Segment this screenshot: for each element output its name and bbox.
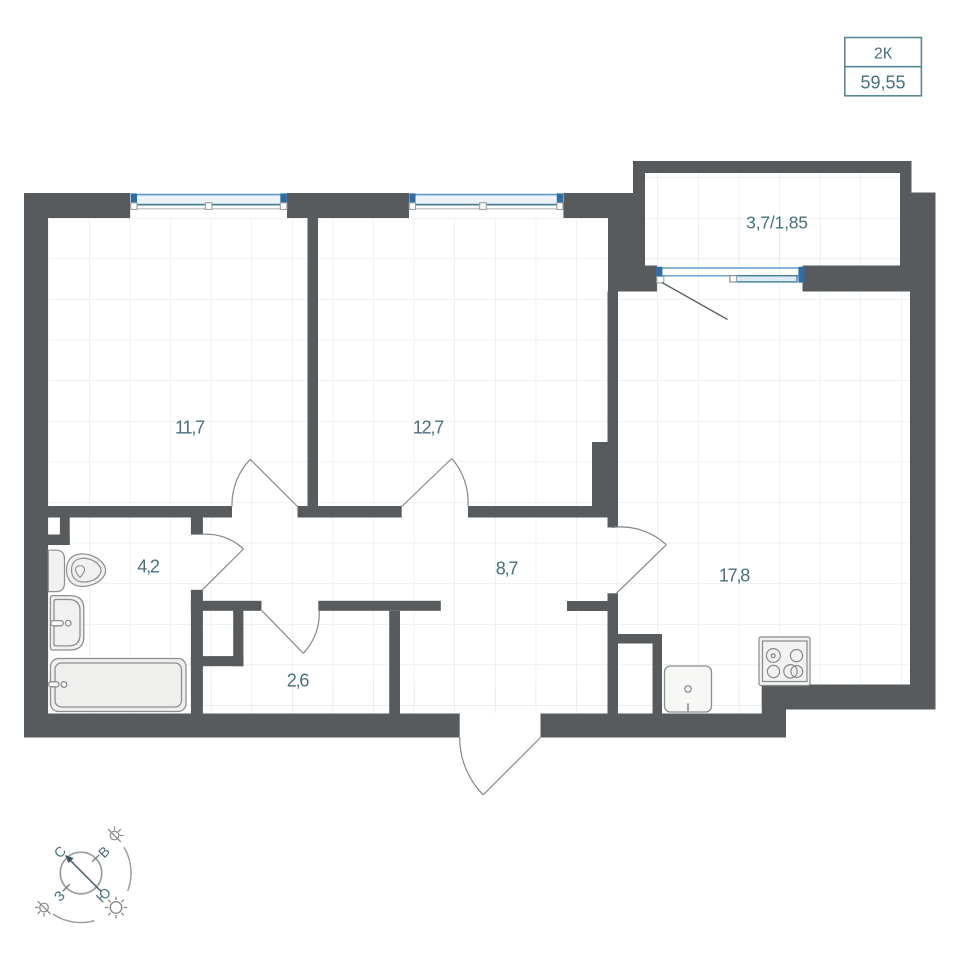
svg-text:8,7: 8,7 [496, 559, 519, 579]
svg-text:59,55: 59,55 [860, 73, 905, 93]
svg-text:В: В [95, 843, 113, 861]
svg-text:12,7: 12,7 [413, 418, 444, 438]
svg-text:4,2: 4,2 [137, 557, 160, 577]
svg-text:2К: 2К [874, 46, 893, 63]
svg-text:2,6: 2,6 [287, 671, 310, 691]
svg-text:17,8: 17,8 [719, 566, 750, 586]
svg-text:3,7/1,85: 3,7/1,85 [746, 213, 808, 233]
svg-text:З: З [51, 887, 68, 904]
svg-text:11,7: 11,7 [175, 418, 205, 438]
